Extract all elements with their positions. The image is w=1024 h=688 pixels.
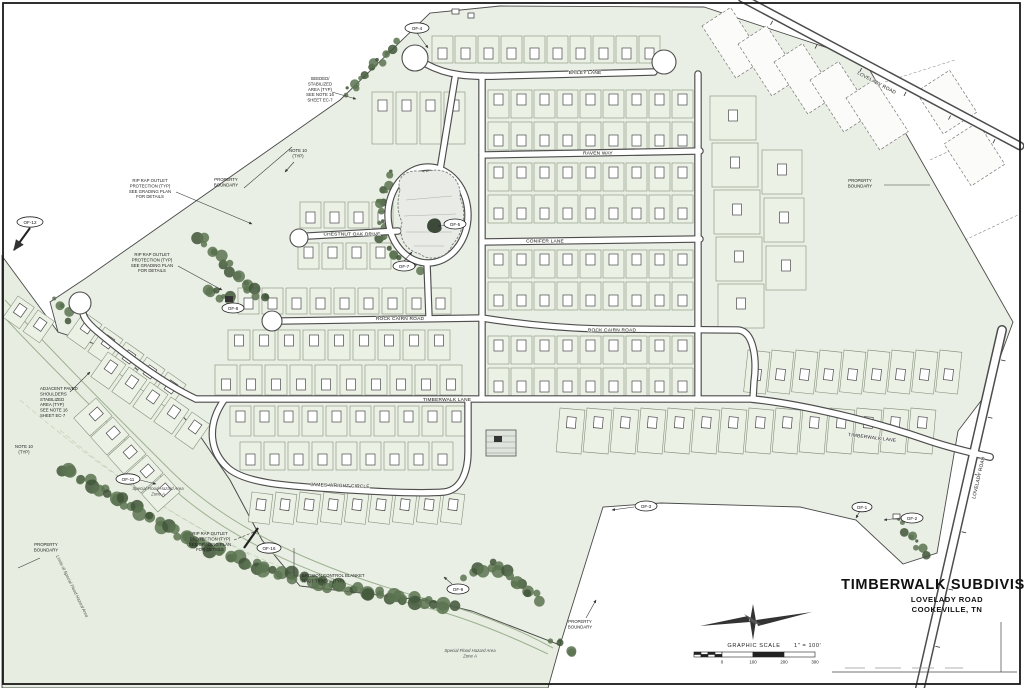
lot	[340, 365, 362, 395]
lot	[511, 195, 532, 223]
lot	[511, 90, 532, 118]
street-label-bailey: BAILEY LANE	[569, 70, 602, 76]
lot	[324, 202, 345, 228]
vegetation	[387, 246, 392, 251]
lot	[912, 350, 938, 394]
lot	[792, 350, 818, 394]
lot	[626, 282, 647, 310]
lot	[264, 442, 285, 470]
lot	[557, 122, 578, 150]
lot	[272, 492, 296, 524]
lot	[580, 163, 601, 191]
plan-title: TIMBERWALK SUBDIVISION	[841, 577, 1024, 593]
lot	[440, 365, 462, 395]
lot	[534, 282, 555, 310]
vegetation	[52, 297, 56, 301]
scale-ratio: 1" = 100'	[794, 643, 821, 649]
lot	[300, 202, 321, 228]
vegetation	[388, 45, 398, 55]
subdivision-plat: OF-12 OF-4 OF-5 OF-7 OF-8 OF-11 OF-16 OF…	[0, 0, 1024, 688]
lot	[392, 492, 416, 524]
callout-of-11: OF-11	[116, 474, 140, 484]
lot	[511, 122, 532, 150]
lot	[649, 282, 670, 310]
lot	[228, 330, 250, 360]
lot	[254, 406, 275, 436]
lot	[626, 195, 647, 223]
lot	[488, 336, 509, 364]
vegetation	[533, 590, 540, 597]
lot	[714, 190, 760, 234]
note-rip-rap-1: RIP RAP OUTLETPROTECTION (TYP)SEE GRADIN…	[129, 178, 171, 199]
vegetation	[201, 241, 207, 247]
lot	[557, 163, 578, 191]
lot	[524, 36, 545, 63]
lot	[710, 96, 756, 140]
lot	[368, 492, 392, 524]
lot	[864, 350, 890, 394]
lot	[649, 250, 670, 278]
scale-tick-200: 200	[780, 660, 788, 665]
lot	[286, 288, 307, 314]
lot	[534, 195, 555, 223]
vegetation	[450, 600, 461, 611]
scale-bar: GRAPHIC SCALE 1" = 100' 0 100 200 300	[694, 643, 821, 665]
lot	[672, 163, 693, 191]
lot	[406, 288, 427, 314]
vegetation	[384, 190, 388, 194]
vegetation	[350, 79, 359, 88]
lot	[336, 442, 357, 470]
lot	[534, 250, 555, 278]
lot	[215, 365, 237, 395]
lot	[346, 243, 367, 269]
lot	[488, 195, 509, 223]
callout-of-9: OF-9	[447, 584, 469, 594]
lot	[626, 163, 647, 191]
lot	[626, 336, 647, 364]
lot	[580, 195, 601, 223]
lot	[278, 406, 299, 436]
lot	[328, 330, 350, 360]
lot	[570, 36, 591, 63]
lot	[672, 368, 693, 396]
lot	[593, 36, 614, 63]
vegetation	[379, 59, 386, 66]
lot	[557, 282, 578, 310]
lot	[745, 408, 774, 454]
lot	[326, 406, 347, 436]
lot	[580, 368, 601, 396]
callout-of-4: OF-4	[405, 23, 429, 33]
lot	[511, 163, 532, 191]
lot	[230, 406, 251, 436]
vegetation	[132, 507, 146, 521]
lot	[265, 365, 287, 395]
lot	[440, 492, 464, 524]
lot	[672, 195, 693, 223]
vegetation	[396, 255, 401, 260]
vegetation	[226, 260, 233, 267]
lot	[557, 368, 578, 396]
lot	[315, 365, 337, 395]
lot	[603, 368, 624, 396]
lot	[382, 288, 403, 314]
street-label-timberwalk-w: TIMBERWALK LANE	[423, 397, 471, 403]
utility-tick	[988, 417, 992, 418]
vegetation	[534, 596, 545, 607]
lot	[603, 336, 624, 364]
vegetation	[76, 476, 84, 484]
callout-of-12: OF-12	[17, 217, 43, 227]
vegetation	[346, 86, 349, 89]
lot	[616, 36, 637, 63]
callout-of-8: OF-8	[222, 303, 244, 313]
lot	[534, 336, 555, 364]
note-property-boundary-3: PROPERTYBOUNDARY	[34, 542, 58, 552]
lot	[310, 288, 331, 314]
lot	[840, 350, 866, 394]
vegetation	[567, 648, 576, 657]
lot	[649, 368, 670, 396]
street-label-rock-cairn-e: ROCK CAIRN ROAD	[588, 328, 637, 334]
lot	[322, 243, 343, 269]
lot	[488, 163, 509, 191]
vegetation	[460, 575, 467, 582]
lot	[610, 408, 639, 454]
lot	[649, 336, 670, 364]
vegetation	[416, 266, 425, 275]
lot	[403, 330, 425, 360]
lot	[936, 350, 962, 394]
vegetation	[56, 301, 65, 310]
vegetation	[511, 576, 524, 589]
vegetation	[251, 292, 259, 300]
lot	[712, 143, 758, 187]
lot	[672, 336, 693, 364]
vegetation	[908, 534, 913, 539]
note-property-boundary-1: PROPERTYBOUNDARY	[214, 177, 238, 187]
callout-of-7: OF-7	[393, 261, 415, 271]
callout-of-2: OF-2	[901, 513, 923, 523]
vegetation	[382, 237, 385, 240]
lot	[240, 442, 261, 470]
lot	[766, 246, 806, 290]
lot	[672, 282, 693, 310]
lot	[415, 365, 437, 395]
lot	[816, 350, 842, 394]
lot	[312, 442, 333, 470]
lot	[603, 122, 624, 150]
lot	[488, 122, 509, 150]
lot	[853, 408, 882, 454]
lot	[626, 122, 647, 150]
note-property-boundary-2: PROPERTYBOUNDARY	[848, 178, 872, 188]
scale-tick-100: 100	[749, 660, 757, 665]
vegetation	[173, 533, 181, 541]
vegetation	[362, 588, 375, 601]
vegetation	[233, 271, 242, 280]
north-arrow-icon	[700, 604, 812, 640]
lot	[718, 408, 747, 454]
vegetation	[523, 589, 531, 597]
lot	[557, 250, 578, 278]
vegetation	[900, 528, 909, 537]
lot	[344, 492, 368, 524]
lot	[534, 90, 555, 118]
lot	[768, 350, 794, 394]
svg-text:OF-1: OF-1	[857, 505, 868, 510]
vegetation	[258, 561, 269, 572]
lot	[358, 288, 379, 314]
lot	[637, 408, 666, 454]
vegetation	[170, 524, 180, 534]
title-block: TIMBERWALK SUBDIVISION LOVELADY ROAD COO…	[841, 577, 1024, 614]
lot	[296, 492, 320, 524]
vegetation	[378, 208, 385, 215]
lot	[278, 330, 300, 360]
lot	[580, 250, 601, 278]
utility-tick	[771, 21, 773, 25]
callout-of-16: OF-16	[257, 543, 281, 553]
utility-tick	[936, 646, 940, 647]
lot	[253, 330, 275, 360]
lot	[534, 163, 555, 191]
lot	[408, 442, 429, 470]
lot	[396, 92, 417, 144]
vegetation	[117, 492, 128, 503]
vegetation	[922, 551, 931, 560]
lot	[557, 90, 578, 118]
lot	[557, 336, 578, 364]
lot	[455, 36, 476, 63]
lot	[664, 408, 693, 454]
lot	[511, 368, 532, 396]
vegetation	[386, 172, 393, 179]
svg-text:OF-5: OF-5	[450, 222, 461, 227]
lot	[716, 237, 762, 281]
vegetation	[477, 565, 490, 578]
vegetation	[243, 561, 251, 569]
callout-of-1: OF-1	[852, 502, 872, 512]
vegetation	[913, 545, 919, 551]
lot	[432, 442, 453, 470]
lot	[353, 330, 375, 360]
utility-tick	[962, 532, 966, 533]
lot	[649, 90, 670, 118]
vegetation	[377, 221, 381, 225]
lot	[350, 406, 371, 436]
lot	[302, 406, 323, 436]
lot	[365, 365, 387, 395]
lot	[422, 406, 443, 436]
street-label-conifer: CONIFER LANE	[526, 239, 564, 245]
lot	[372, 92, 393, 144]
vegetation	[375, 58, 379, 62]
lot	[432, 36, 453, 63]
street-label-rock-cairn-w: ROCK CAIRN ROAD	[376, 316, 425, 322]
lot	[534, 368, 555, 396]
vegetation	[65, 318, 72, 325]
lot	[384, 442, 405, 470]
lot	[488, 250, 509, 278]
lot	[416, 492, 440, 524]
lot	[488, 90, 509, 118]
svg-text:OF-9: OF-9	[453, 587, 464, 592]
lot	[547, 36, 568, 63]
vegetation	[375, 199, 385, 209]
svg-text:OF-3: OF-3	[641, 504, 652, 509]
plan-city: COOKEVILLE, TN	[912, 605, 983, 614]
lot	[290, 365, 312, 395]
vegetation	[365, 75, 369, 79]
lot	[691, 408, 720, 454]
lot	[583, 408, 612, 454]
lot	[240, 365, 262, 395]
vegetation	[64, 465, 77, 478]
vegetation	[261, 293, 269, 301]
vegetation	[220, 259, 226, 265]
lot	[557, 195, 578, 223]
vegetation	[216, 295, 224, 303]
lot	[420, 92, 441, 144]
callout-of-5: OF-5	[444, 219, 466, 229]
callout-of-3: OF-3	[635, 501, 657, 511]
lot	[348, 202, 369, 228]
lot	[511, 282, 532, 310]
lot	[488, 282, 509, 310]
street-label-chestnut: CHESTNUT OAK DRIVE	[323, 232, 380, 238]
utility-tick	[904, 92, 906, 96]
lot	[649, 195, 670, 223]
vegetation	[915, 539, 918, 542]
lot	[428, 330, 450, 360]
lot	[288, 442, 309, 470]
lot	[603, 250, 624, 278]
lot	[360, 442, 381, 470]
vegetation	[322, 583, 332, 593]
lot	[603, 90, 624, 118]
svg-text:OF-16: OF-16	[262, 546, 275, 551]
note-property-boundary-4: PROPERTYBOUNDARY	[568, 619, 592, 629]
lot	[762, 150, 802, 194]
lot	[374, 406, 395, 436]
lot	[556, 408, 585, 454]
vegetation	[436, 597, 450, 611]
lot	[649, 122, 670, 150]
vegetation	[393, 38, 400, 45]
lot	[488, 368, 509, 396]
lot	[672, 90, 693, 118]
lot	[248, 492, 272, 524]
vegetation	[358, 76, 362, 80]
lot	[501, 36, 522, 63]
lot	[378, 330, 400, 360]
scale-tick-0: 0	[721, 660, 724, 665]
svg-text:OF-12: OF-12	[23, 220, 36, 225]
lot	[603, 195, 624, 223]
lot	[430, 288, 451, 314]
utility-tick	[993, 139, 995, 143]
scale-label: GRAPHIC SCALE	[727, 643, 780, 649]
lot	[672, 122, 693, 150]
lot	[334, 288, 355, 314]
plan-sheet: OF-12 OF-4 OF-5 OF-7 OF-8 OF-11 OF-16 OF…	[0, 0, 1024, 688]
lot	[718, 284, 764, 328]
lot	[398, 406, 419, 436]
vegetation	[103, 489, 112, 498]
lot	[446, 406, 467, 436]
vegetation	[399, 595, 408, 604]
lot	[603, 282, 624, 310]
lot	[888, 350, 914, 394]
svg-text:OF-8: OF-8	[228, 306, 239, 311]
lot	[320, 492, 344, 524]
plan-road: LOVELADY ROAD	[911, 595, 983, 604]
lot	[649, 163, 670, 191]
svg-text:OF-7: OF-7	[399, 264, 410, 269]
scale-tick-300: 300	[811, 660, 819, 665]
lot	[580, 122, 601, 150]
lot	[303, 330, 325, 360]
lot	[626, 368, 647, 396]
lot	[772, 408, 801, 454]
vegetation	[376, 591, 384, 599]
lot	[764, 198, 804, 242]
lot	[534, 122, 555, 150]
lot	[511, 336, 532, 364]
vegetation	[557, 639, 564, 646]
lot	[580, 90, 601, 118]
lot	[626, 250, 647, 278]
lot	[511, 250, 532, 278]
street-label-raven: RAVEN WAY	[583, 151, 613, 157]
vegetation	[548, 638, 553, 643]
lot	[626, 90, 647, 118]
utility-tick	[1001, 360, 1005, 361]
lot	[580, 336, 601, 364]
svg-text:OF-11: OF-11	[122, 477, 135, 482]
svg-text:OF-2: OF-2	[907, 516, 918, 521]
lot	[478, 36, 499, 63]
vegetation	[145, 512, 153, 520]
svg-text:OF-4: OF-4	[412, 26, 423, 31]
lot	[603, 163, 624, 191]
lot	[580, 282, 601, 310]
note-seeded-area: SEEDED/STABILIZEDAREA (TYP)SEE NOTE 16SH…	[306, 76, 334, 103]
lot	[672, 250, 693, 278]
vegetation	[287, 574, 298, 585]
lot	[390, 365, 412, 395]
